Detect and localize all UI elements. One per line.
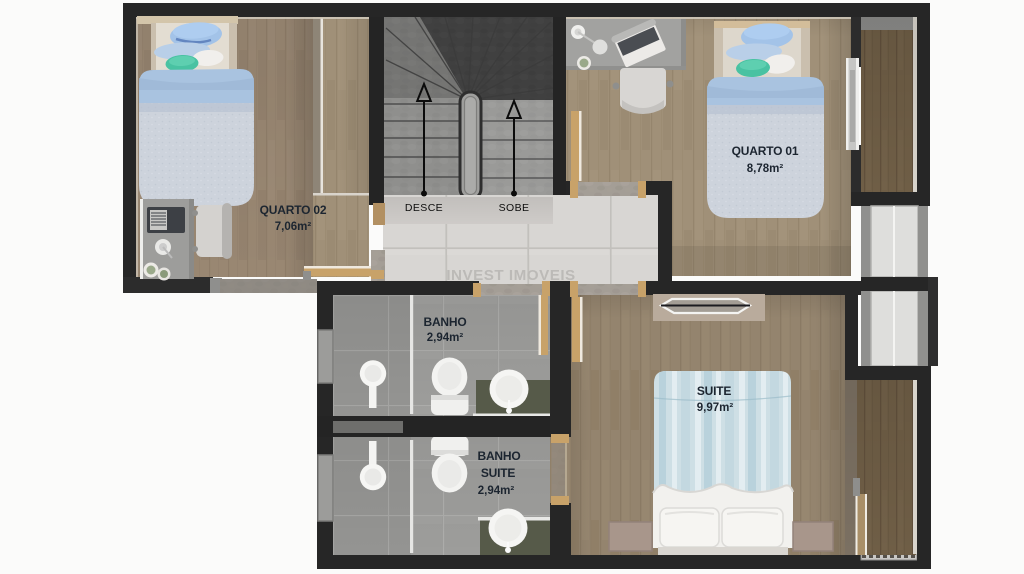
- svg-text:8,78m²: 8,78m²: [747, 163, 784, 175]
- svg-text:SUITE: SUITE: [481, 466, 516, 480]
- svg-text:QUARTO 01: QUARTO 01: [732, 144, 799, 158]
- svg-text:DESCE: DESCE: [405, 202, 443, 214]
- svg-text:9,97m²: 9,97m²: [697, 402, 734, 414]
- svg-text:BANHO: BANHO: [424, 315, 467, 329]
- svg-text:QUARTO 02: QUARTO 02: [260, 203, 327, 217]
- svg-text:7,06m²: 7,06m²: [275, 221, 312, 233]
- svg-text:2,94m²: 2,94m²: [427, 332, 464, 344]
- svg-text:SOBE: SOBE: [499, 202, 530, 214]
- svg-text:BANHO: BANHO: [478, 449, 521, 463]
- svg-text:SUITE: SUITE: [697, 384, 732, 398]
- svg-text:2,94m²: 2,94m²: [478, 485, 515, 497]
